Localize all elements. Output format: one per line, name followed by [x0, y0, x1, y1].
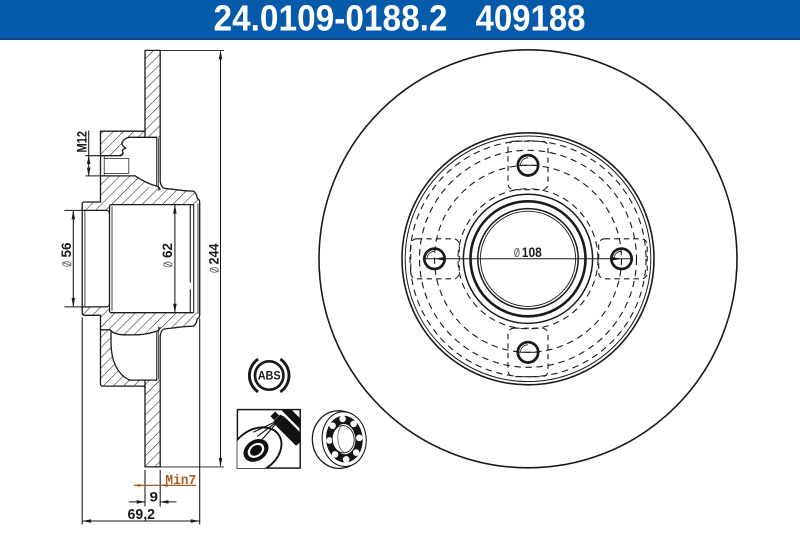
svg-text:Min7: Min7	[165, 473, 196, 489]
svg-text:24.0109-0188.2: 24.0109-0188.2	[214, 0, 448, 39]
svg-text:62: 62	[160, 243, 175, 258]
svg-text:244: 244	[207, 243, 222, 264]
svg-text:409188: 409188	[476, 0, 586, 39]
svg-text:56: 56	[59, 242, 74, 257]
svg-text:ABS: ABS	[258, 371, 281, 383]
svg-text:9: 9	[150, 489, 159, 505]
svg-text:69,2: 69,2	[128, 507, 156, 523]
svg-text:M12: M12	[75, 131, 90, 153]
svg-text:108: 108	[522, 245, 542, 260]
